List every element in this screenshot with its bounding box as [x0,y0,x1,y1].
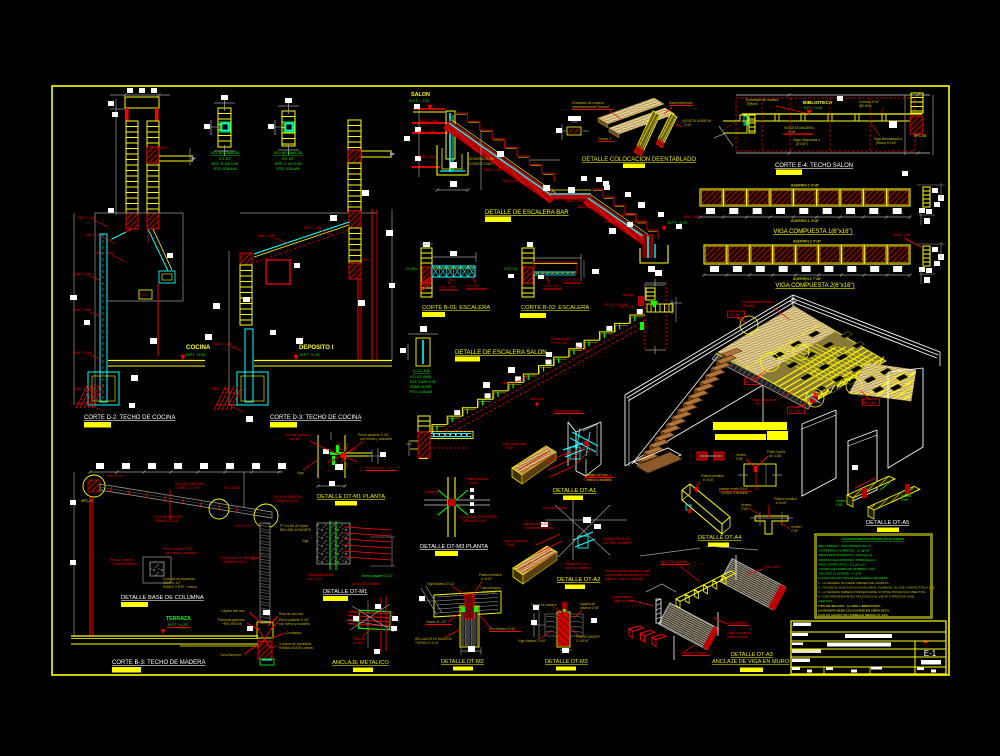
svg-text:N.P.T. +3.45: N.P.T. +3.45 [186,353,205,357]
svg-text:de 1/16Z: de 1/16Z [769,454,782,458]
svg-text:Viga: Viga [302,539,309,543]
svg-text:Rota de concreto: Rota de concreto [279,612,304,616]
svg-text:DETALLE DT-A3: DETALLE DT-A3 [731,652,773,658]
svg-text:VC=1(0.25x0.25): VC=1(0.25x0.25) [274,151,304,155]
svg-text:DETALLE DT-M3 PLANTA: DETALLE DT-M3 PLANTA [420,544,488,550]
svg-text:-RESISTENCIA FLEXION : 210 kg/: -RESISTENCIA FLEXION : 210 kg/cm2 [818,553,872,557]
svg-text:-CONTENIDO HUMEDAD : 12 kg/m2: -CONTENIDO HUMEDAD : 12 kg/m2 [818,549,870,553]
svg-text:EST. O 1/4":0.05: EST. O 1/4":0.05 [212,162,238,166]
svg-text:MAD.T-2x8: MAD.T-2x8 [304,226,321,230]
svg-text:TORNILLO 2"x6": TORNILLO 2"x6" [175,486,201,490]
svg-text:Madera 6"x16": Madera 6"x16" [727,635,748,639]
svg-text:CORTE B-3: TECHO DE MADERA: CORTE B-3: TECHO DE MADERA [112,660,205,666]
svg-text:MAD.T-2x8: MAD.T-2x8 [619,213,636,217]
svg-text:Contraplac: Contraplac [286,631,302,635]
svg-text:-CC.101: -CC.101 [405,267,417,271]
svg-text:e=3/16": e=3/16" [481,577,492,581]
svg-text:con 3/4": con 3/4" [289,437,302,441]
svg-text:clavo 2x8: clavo 2x8 [502,381,516,385]
svg-text:E-1: E-1 [924,649,937,658]
svg-text:CLASIFICACION VISUAL DE MADERA: CLASIFICACION VISUAL DE MADERA DE OBRA: [818,576,888,580]
svg-text:6"x8": 6"x8" [507,543,515,547]
svg-text:CORTE E-4: TECHO SALON: CORTE E-4: TECHO SALON [775,163,853,169]
svg-text:Toma Asempre: Toma Asempre [220,653,241,657]
svg-text:TORNILLO 4"x4": TORNILLO 4"x4" [222,560,248,564]
svg-text:MAD.T-2x8: MAD.T-2x8 [212,387,229,391]
svg-text:TORNILLO 2"x2": TORNILLO 2"x2" [274,499,300,503]
svg-text:2O3/8",1O3/8": 2O3/8",1O3/8" [410,385,433,389]
svg-text:2"x8": 2"x8" [901,498,908,502]
svg-text:madera 2"x8": madera 2"x8" [580,606,599,610]
svg-text:MAD. 2x8: MAD. 2x8 [503,179,518,183]
svg-text:+R50-R50 BB: +R50-R50 BB [222,622,242,626]
svg-text:de 1/4"x2": de 1/4"x2" [482,590,497,594]
svg-text:4 O 1/2": 4 O 1/2" [219,157,232,161]
svg-text:V-CC.101: V-CC.101 [504,267,518,271]
svg-text:MAD-2x8: MAD-2x8 [605,220,619,224]
svg-text:MAD-2x8: MAD-2x8 [577,205,591,209]
svg-text:MAD.T-2x8: MAD.T-2x8 [74,308,91,312]
svg-text:MAD?(BA.): MAD?(BA.) [466,284,482,288]
svg-text:4.- CON PRESERVANTES APLICADOS: 4.- CON PRESERVANTES APLICADOS AL VACIO … [818,595,914,599]
svg-text:LA MADERA DEBE COLOCARSE EN OB: LA MADERA DEBE COLOCARSE EN OBRA SECA [818,608,890,612]
svg-text:DETALLE DE ESCALERA BAR: DETALLE DE ESCALERA BAR [485,210,569,216]
svg-text:ANCLAJE DE VIGA EN MURO: ANCLAJE DE VIGA EN MURO [712,659,790,665]
svg-text:Viga Madera 2"x10": Viga Madera 2"x10" [518,639,546,643]
svg-text:VPC-01: VPC-01 [81,499,93,503]
svg-text:Columna concreto: Columna concreto [554,409,581,413]
svg-text:V-CC-101: V-CC-101 [413,369,430,373]
svg-text:MAD.T-2x8: MAD.T-2x8 [258,234,275,238]
svg-text:VGA AAERIE: VGA AAERIE [728,621,748,625]
svg-text:Cajuela real mun: Cajuela real mun [221,609,245,613]
svg-text:MAD.T-2x8: MAD.T-2x8 [566,199,583,203]
svg-text:MAD.T-2x8: MAD.T-2x8 [74,272,91,276]
svg-text:tuerca y arandela: tuerca y arandela [565,566,590,570]
svg-text:con tuerca y arandela: con tuerca y arandela [279,622,310,626]
svg-text:escalera dicance: escalera dicance [682,651,706,655]
svg-text:DT-A3: DT-A3 [746,379,758,384]
svg-text:VB-1: VB-1 [160,146,168,150]
svg-text:DETALLE BASE DE COLUMNA: DETALLE BASE DE COLUMNA [121,595,204,601]
svg-text:MAD/A-(BA.): MAD/A-(BA.) [543,284,561,288]
svg-text:@0.50m: @0.50m [859,104,872,108]
svg-text:MAD.T-2x8: MAD.T-2x8 [418,130,435,134]
svg-text:CORTE B-02: ESCALERA: CORTE B-02: ESCALERA [521,305,589,311]
svg-text:DETALLE DT-M1 PLANTA: DETALLE DT-M1 PLANTA [317,494,385,500]
svg-text:DETALLE DT-A2: DETALLE DT-A2 [557,577,600,583]
svg-text:Tornillo 1/2": Tornillo 1/2" [424,490,442,494]
svg-text:am O y04: am O y04 [308,577,322,581]
svg-text:VB-1: VB-1 [362,258,370,262]
svg-text:VIGA COMPUESTA 1(6"x16"): VIGA COMPUESTA 1(6"x16") [773,229,852,235]
svg-text:MAD.T-2x8: MAD.T-2x8 [420,119,437,123]
svg-text:DETALLE COLOCACION DEENTABLAD: DETALLE COLOCACION DEENTABLADO [582,157,696,163]
svg-text:MAD. 2x8: MAD. 2x8 [420,155,435,159]
svg-text:VIG. 05-09: VIG. 05-09 [224,486,240,490]
svg-text:DETALLE DT-M2: DETALLE DT-M2 [441,659,484,665]
svg-text:1.- LA MADERA NO DEBE PRESENTA: 1.- LA MADERA NO DEBE PRESENTAR GRIETAS, [818,581,890,585]
svg-text:MAD.T-2x8: MAD.T-2x8 [216,403,233,407]
svg-text:ADHERE 4 CHEMA: ADHERE 4 CHEMA [603,541,632,545]
svg-text:MAD.T-2x8: MAD.T-2x8 [74,387,91,391]
svg-text:m=3/16": m=3/16" [353,641,365,645]
svg-text:TIPO DE SECADO : AL AIRE LIBRE: TIPO DE SECADO : AL AIRE LIBRE/HORNO [818,604,881,608]
svg-text:e=3/16": e=3/16" [703,478,714,482]
svg-text:75(Mm): 75(Mm) [746,102,758,106]
svg-text:TORNILLO 2"x8": TORNILLO 2"x8" [154,519,180,523]
svg-text:EXT.A-18: EXT.A-18 [620,305,634,309]
svg-text:VIG. 05-07: VIG. 05-07 [235,524,251,528]
svg-text:Acondicionamiento/Secado de la: Acondicionamiento/Secado de la madera [842,537,904,541]
svg-text:RTO. 0.25 A/M: RTO. 0.25 A/M [276,167,299,171]
svg-text:MAD. 2x8: MAD. 2x8 [684,215,699,219]
svg-text:-MODULO ELASTICIDAD : 95000 kg: -MODULO ELASTICIDAD : 95000 kg/cm2 [818,558,876,562]
svg-text:2"x8": 2"x8" [736,457,743,461]
svg-text:2"x8": 2"x8" [791,529,798,533]
svg-text:machihembrado/"Gruesa": machihembrado/"Gruesa" [572,105,611,109]
svg-text:N.P.T. +2.95: N.P.T. +2.95 [300,353,319,357]
svg-text:Perno pasante O 1/2": Perno pasante O 1/2" [362,574,393,578]
svg-text:-SECADO AL HORNO : < 12 %: -SECADO AL HORNO : < 12 % [818,572,861,576]
svg-text:Viga: Viga [297,471,304,475]
svg-text:TORNILLO 4"x4": TORNILLO 4"x4" [415,641,439,645]
svg-text:VIG. DT-A: VIG. DT-A [107,474,123,478]
svg-text:DETALLE DT-A4: DETALLE DT-A4 [698,535,742,541]
svg-text:MAD 2x8: MAD 2x8 [529,397,543,401]
svg-text:(6"x16"): (6"x16") [796,142,808,146]
svg-text:2"x8": 2"x8" [684,123,692,127]
svg-text:con muescas 2"x4": con muescas 2"x4" [365,466,394,470]
svg-text:MAD.T-2x8: MAD.T-2x8 [484,168,501,172]
svg-text:75(mm)p: 75(mm)p [742,304,755,308]
svg-text:SEMBRADO Afir.: SEMBRADO Afir. [469,157,495,161]
svg-text:Clavos 2L 1/2": Clavos 2L 1/2" [426,620,447,624]
svg-text:anclaje 1/2" con: anclaje 1/2" con [585,473,608,477]
svg-text:EST. O 1/4":0.05: EST. O 1/4":0.05 [275,162,301,166]
svg-text:SALON: SALON [411,92,430,98]
svg-text:2.- NI NUDOS SUELTOS NI RAJADU: 2.- NI NUDOS SUELTOS NI RAJADURAS, ALABE… [818,585,935,589]
svg-text:SECA PRESLL - TIPO STRUCGRL "A: SECA PRESLL - TIPO STRUCGRL "A" [818,544,872,548]
svg-text:tuerca y arandela: tuerca y arandela [587,478,612,482]
svg-text:e=3/16": e=3/16" [776,501,787,505]
svg-text:MAD. 2x8: MAD. 2x8 [631,219,646,223]
svg-text:N.P.T. +1.20: N.P.T. +1.20 [168,623,187,627]
svg-text:Viga louvre: Viga louvre [764,565,780,569]
svg-text:CORTE B-01: ESCALERA: CORTE B-01: ESCALERA [422,305,490,311]
svg-text:DETALLE DT-A5: DETALLE DT-A5 [866,520,909,526]
svg-text:MAD.T-2x8: MAD.T-2x8 [74,351,91,355]
svg-text:MAD/A-(BA.): MAD/A-(BA.) [439,285,457,289]
svg-text:-SECADO:: -SECADO: [818,599,833,603]
svg-text:N.P.T. +4.45: N.P.T. +4.45 [804,106,822,110]
svg-text:RAWLD 5 RZS + tuerca: RAWLD 5 RZS + tuerca [163,585,197,589]
svg-text:VC=1(0.25x0.25): VC=1(0.25x0.25) [211,151,241,155]
svg-text:RTO. 0.25 A/M: RTO. 0.25 A/M [410,390,432,394]
svg-text:Anclaje: Anclaje [623,293,634,297]
svg-text:ASERRIN 1 4"x6": ASERRIN 1 4"x6" [791,219,820,223]
svg-text:N.P.T. = 1.20: N.P.T. = 1.20 [409,99,429,103]
svg-text:ROM DE MADER: ROM DE MADER [661,560,688,564]
svg-text:MAD.T-2x8: MAD.T-2x8 [78,216,95,220]
svg-text:RTO. 0.25 A/M: RTO. 0.25 A/M [213,167,236,171]
svg-text:Machihembrado: Machihembrado [669,101,693,105]
svg-text:DETALLE DT-A1: DETALLE DT-A1 [553,488,596,494]
svg-text:con tuerca y arandela: con tuerca y arandela [165,551,197,555]
svg-text:DETALLE DE ESCALERA SALON: DETALLE DE ESCALERA SALON [455,350,547,356]
svg-text:RxNBd4 8 M28 o similar: RxNBd4 8 M28 o similar [279,646,314,650]
svg-text:6"x8": 6"x8" [506,446,514,450]
svg-text:O 1/8"x2": O 1/8"x2" [576,639,589,643]
svg-text:ANCLAJE METALICO: ANCLAJE METALICO [332,660,389,666]
svg-text:4 O 1/2": 4 O 1/2" [282,157,295,161]
svg-text:VIGA COMPUESTA 2(6"x16"): VIGA COMPUESTA 2(6"x16") [775,283,854,289]
svg-text:ASERRIN 2 4"x6": ASERRIN 2 4"x6" [793,240,822,244]
svg-text:-GRADO DE HUMEDAD INTERNO: 12%: -GRADO DE HUMEDAD INTERNO: 12% [818,567,875,571]
svg-text:(fija o similar): (fija o similar) [614,599,633,603]
svg-text:4-e 10x04 2 BRAMA: 4-e 10x04 2 BRAMA [351,582,381,586]
svg-text:Clavos 2": Clavos 2" [598,137,613,141]
svg-text:VPC-08: VPC-08 [914,134,926,138]
svg-text:Viga Madera 2"x12": Viga Madera 2"x12" [427,582,455,586]
svg-text:"Machihembrado": "Machihembrado" [112,562,139,566]
svg-text:+0.10: +0.10 [140,293,148,297]
svg-text:2"x8": 2"x8" [836,503,843,507]
svg-text:DETALLE DT-M1: DETALLE DT-M1 [323,589,367,595]
svg-text:2"x8": 2"x8" [741,507,748,511]
svg-text:TERRAZA: TERRAZA [166,616,191,622]
svg-text:Soldada a extremos: Soldada a extremos [525,526,554,530]
svg-text:DEPOSITO I: DEPOSITO I [299,345,334,351]
svg-text:TORNILLO 4"x4": TORNILLO 4"x4" [462,519,488,523]
svg-text:CORTE D-3: TECHO DE COCINA: CORTE D-3: TECHO DE COCINA [270,415,361,421]
svg-text:-PESO ESPECIFICO : 1.1 gr/cm3: -PESO ESPECIFICO : 1.1 gr/cm3 [818,562,865,566]
svg-text:DETALLE DT-M3: DETALLE DT-M3 [545,659,588,665]
svg-text:EST. O 1/4":0.05: EST. O 1/4":0.05 [410,380,435,384]
svg-text:e=3/16": e=3/16" [467,481,479,485]
svg-text:(pintura o base en celeste): (pintura o base en celeste) [605,577,643,581]
svg-text:Mon de concreto: Mon de concreto [543,506,567,510]
svg-text:6"x16": 6"x16" [756,402,766,406]
svg-text:MAD.T-2x8: MAD.T-2x8 [214,342,231,346]
svg-text:MDM 1"x8": MDM 1"x8" [894,233,912,237]
svg-text:MAD/A-(BA.): MAD/A-(BA.) [563,278,581,282]
svg-text:con tuerca y arandela: con tuerca y arandela [360,437,392,441]
svg-text:DT-A1: DT-A1 [789,408,801,413]
svg-text:4 O 1/2" (8x8): 4 O 1/2" (8x8) [410,375,431,379]
svg-text:CORTE D-2: TECHO DE COCINA: CORTE D-2: TECHO DE COCINA [84,415,175,421]
svg-text:COCINA: COCINA [186,344,211,351]
svg-text:3.- LA MADERA DEBERA PRESERVAR: 3.- LA MADERA DEBERA PRESERVARSE CONTRA … [818,590,925,594]
svg-text:MAD.T-2x8: MAD.T-2x8 [96,251,113,255]
svg-text:(90cm) 6"x16": (90cm) 6"x16" [876,141,897,145]
svg-text:V-CSC-101: V-CSC-101 [551,341,568,345]
svg-text:DT-A4: DT-A4 [729,312,741,317]
svg-text:ASERRIN 1 7"x8": ASERRIN 1 7"x8" [793,277,822,281]
svg-text:CON UN GRADO DE HUMEDAD MENOR: CON UN GRADO DE HUMEDAD MENOR AL 12% [818,613,888,617]
svg-text:BE4-4BB 44 BdDNTE: BE4-4BB 44 BdDNTE [280,528,311,532]
svg-text:Pen Madera 2"x10": Pen Madera 2"x10" [489,627,516,631]
svg-text:MAD.T-2x8: MAD.T-2x8 [76,402,93,406]
svg-text:DT-A6: DT-A6 [864,400,876,405]
svg-text:ASERRIN 2 4"x6": ASERRIN 2 4"x6" [791,184,820,188]
